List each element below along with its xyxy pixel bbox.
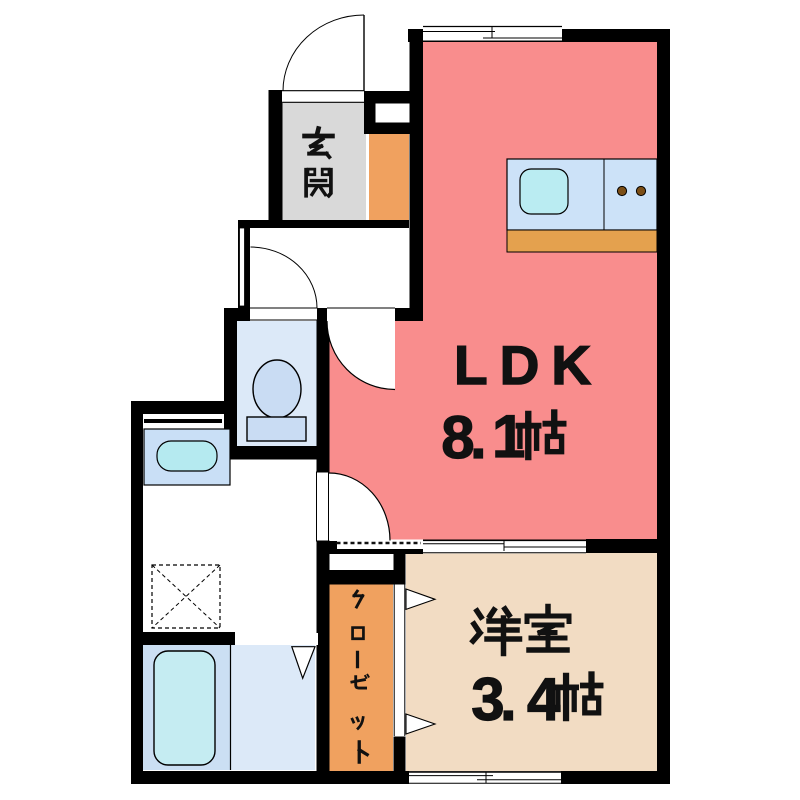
svg-text:LDK: LDK xyxy=(454,334,603,396)
svg-text:.: . xyxy=(500,666,517,733)
svg-text:.: . xyxy=(470,404,487,471)
